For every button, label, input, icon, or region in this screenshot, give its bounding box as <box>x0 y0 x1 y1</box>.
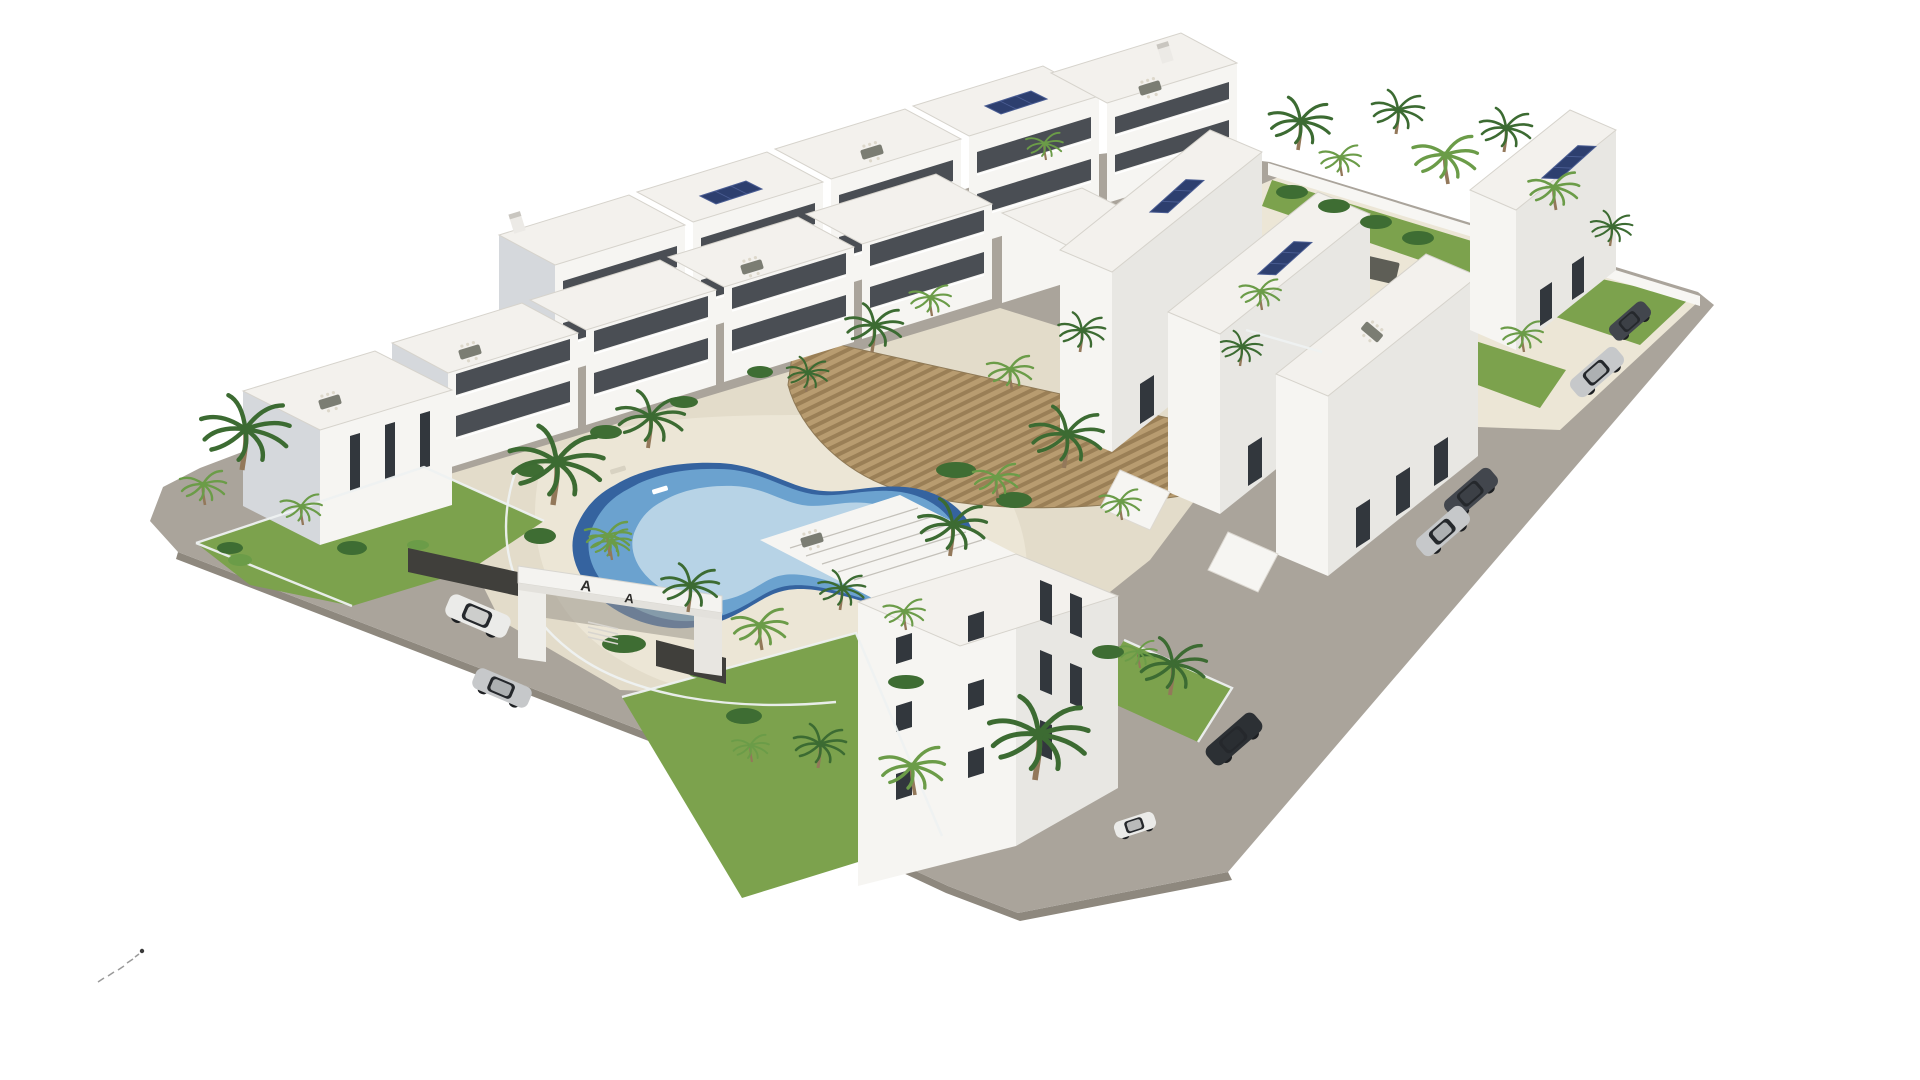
palm-tree <box>1320 145 1361 176</box>
palm-tree <box>1269 97 1331 150</box>
dashed-scale-mark <box>98 949 144 982</box>
palm-tree <box>1413 136 1477 184</box>
chimney <box>508 211 525 234</box>
palm-tree <box>1480 108 1532 152</box>
render-image: A A <box>0 0 1920 1080</box>
palm-tree <box>1372 90 1424 134</box>
complex-render: A A <box>0 0 1920 1080</box>
